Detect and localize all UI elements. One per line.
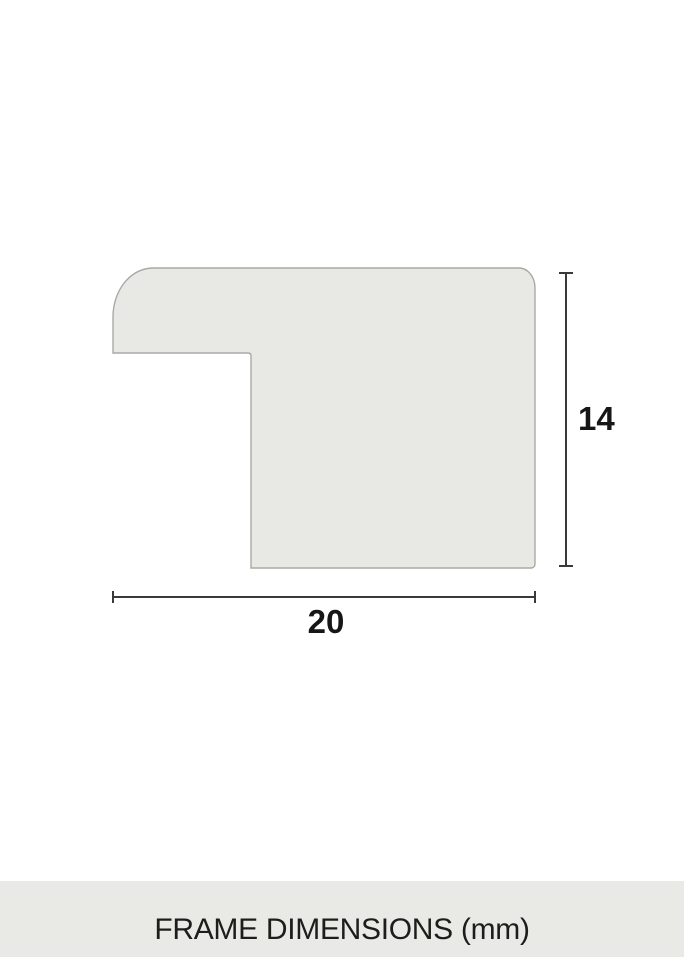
- frame-dimensions-page: 14 20 FRAME DIMENSIONS (mm): [0, 0, 684, 957]
- height-dimension-label: 14: [578, 400, 615, 437]
- width-dimension-label: 20: [308, 603, 345, 640]
- width-dimension-line: [113, 591, 535, 603]
- frame-profile-diagram: 14 20: [0, 0, 684, 881]
- caption-bar: FRAME DIMENSIONS (mm): [0, 881, 684, 957]
- caption-title: FRAME DIMENSIONS (mm): [154, 913, 529, 947]
- frame-cross-section-shape: [113, 268, 535, 568]
- height-dimension-line: [559, 273, 573, 566]
